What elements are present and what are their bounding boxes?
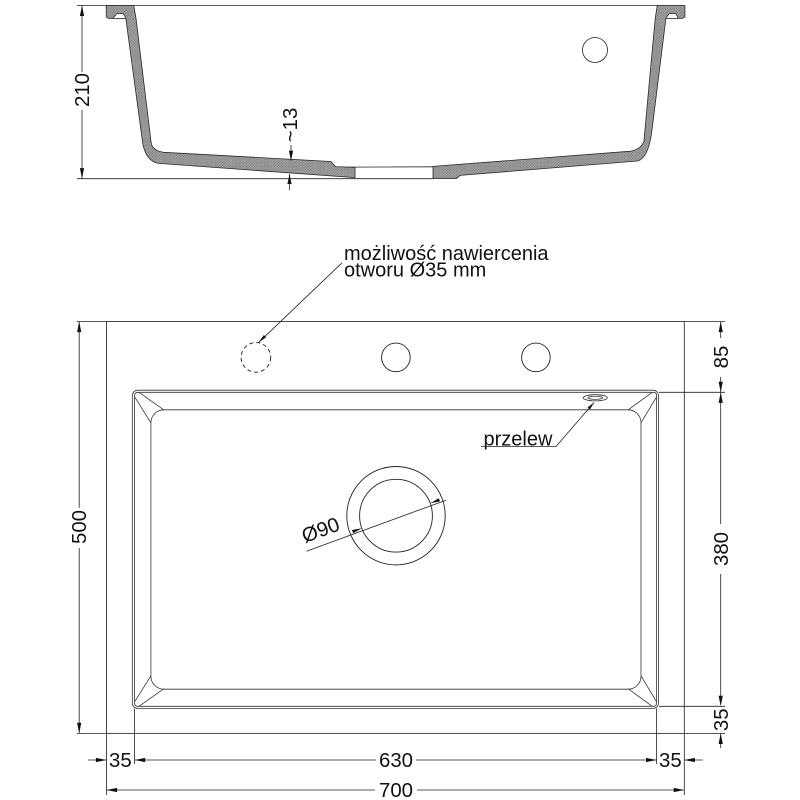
svg-text:przelew: przelew xyxy=(484,429,553,451)
svg-text:35: 35 xyxy=(659,750,682,772)
svg-text:210: 210 xyxy=(72,73,94,107)
svg-text:85: 85 xyxy=(711,346,733,369)
svg-text:500: 500 xyxy=(69,510,91,544)
svg-text:35: 35 xyxy=(711,708,733,731)
svg-text:~13: ~13 xyxy=(280,108,302,143)
svg-text:380: 380 xyxy=(711,532,733,566)
svg-text:700: 700 xyxy=(379,780,413,800)
svg-text:630: 630 xyxy=(379,750,413,772)
svg-text:35: 35 xyxy=(109,750,132,772)
svg-text:otworu Ø35 mm: otworu Ø35 mm xyxy=(344,260,486,282)
